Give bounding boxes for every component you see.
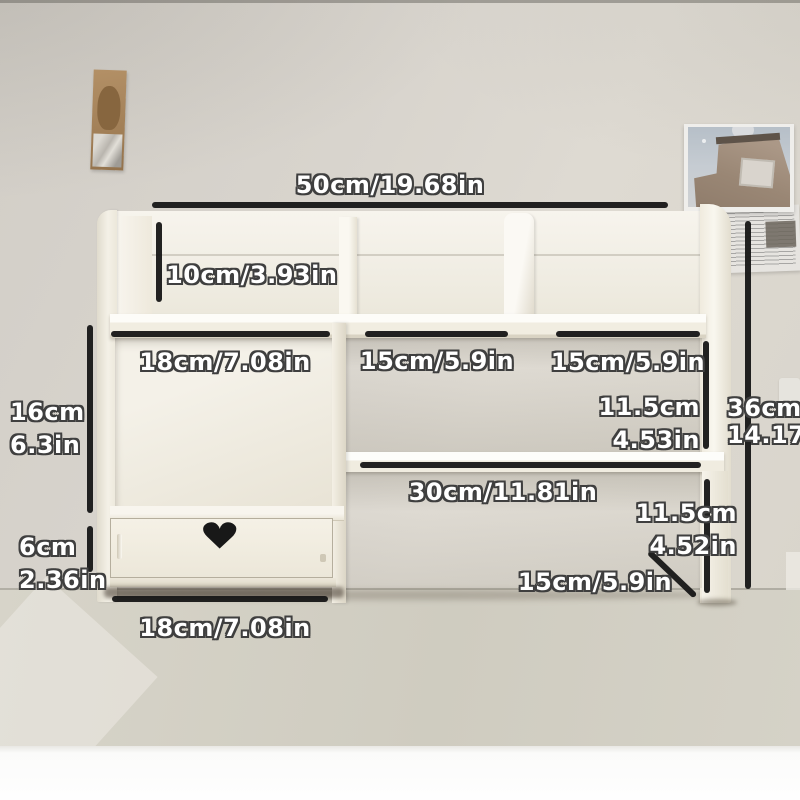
dim-label-total-height: 36cm 14.17in [727,395,800,449]
polaroid-photo [684,124,794,212]
dim-value-in: 14.17in [727,422,800,449]
dim-label-left-inner-height: 16cm 6.3in [10,396,85,462]
measure-line-top-inner-height [156,222,162,302]
dim-label-middle-compartment-width: 15cm/5.9in [360,348,514,374]
dim-label-top-width: 50cm/19.68in [296,172,485,198]
dim-value-cm: 6cm [19,531,107,564]
measure-line-lower-shelf-width [360,462,701,468]
dim-label-right-upper-height: 11.5cm 4.53in [599,391,700,457]
dim-value-in: 6.3in [10,429,85,462]
image-bottom-white-band [0,746,800,800]
product-dimension-photo: ♥ 50cm/19.68in 10cm/3.93in 18cm/7.08in 1… [0,0,800,800]
bear-silhouette-icon [97,86,122,131]
left-panel-inner-face-top [116,216,152,328]
dim-value-in: 4.52in [636,530,737,563]
measure-line-middle-compartment-width [365,331,508,337]
center-divider-wall [332,323,346,603]
kraft-card-picture [90,69,126,170]
top-divider-left [339,217,357,325]
dim-value-cm: 16cm [10,396,85,429]
polaroid-image [688,127,790,207]
measure-line-top-width [152,202,668,208]
wall-note [786,552,800,590]
top-divider-right [504,213,534,325]
measure-line-left-inner-height [87,325,93,513]
moon-dot [702,139,706,143]
measure-line-right-compartment-width [556,331,700,337]
backboard-seam [113,254,704,256]
dim-value-cm: 36cm [727,395,800,422]
dim-label-drawer-width: 18cm/7.08in [139,615,310,641]
card-photo-strip [92,133,122,167]
dim-value-cm: 11.5cm [636,497,737,530]
dim-label-right-lower-height: 11.5cm 4.52in [636,497,737,563]
measure-line-drawer-width [112,596,328,602]
right-leg-shadow [697,599,737,606]
heart-cutout-icon: ♥ [199,519,240,555]
drawer-base-board [110,578,336,587]
dim-value-in: 4.53in [599,424,700,457]
dim-value-cm: 11.5cm [599,391,700,424]
dim-label-top-inner-height: 10cm/3.93in [166,262,337,288]
wall-top-shadow [0,0,800,3]
dim-label-right-compartment-width: 15cm/5.9in [551,349,705,375]
measure-line-left-compartment-width [111,331,330,337]
drawer-slot-right [320,554,326,562]
drawer-slot-left [117,534,122,559]
dim-label-left-compartment-width: 18cm/7.08in [139,349,310,375]
newspaper-photo [765,221,796,248]
building-sign [739,158,775,189]
dim-label-base-depth: 15cm/5.9in [518,569,672,595]
dim-label-lower-shelf-width: 30cm/11.81in [409,479,598,505]
dim-value-in: 2.36in [19,564,107,597]
dim-label-drawer-height: 6cm 2.36in [19,531,107,597]
